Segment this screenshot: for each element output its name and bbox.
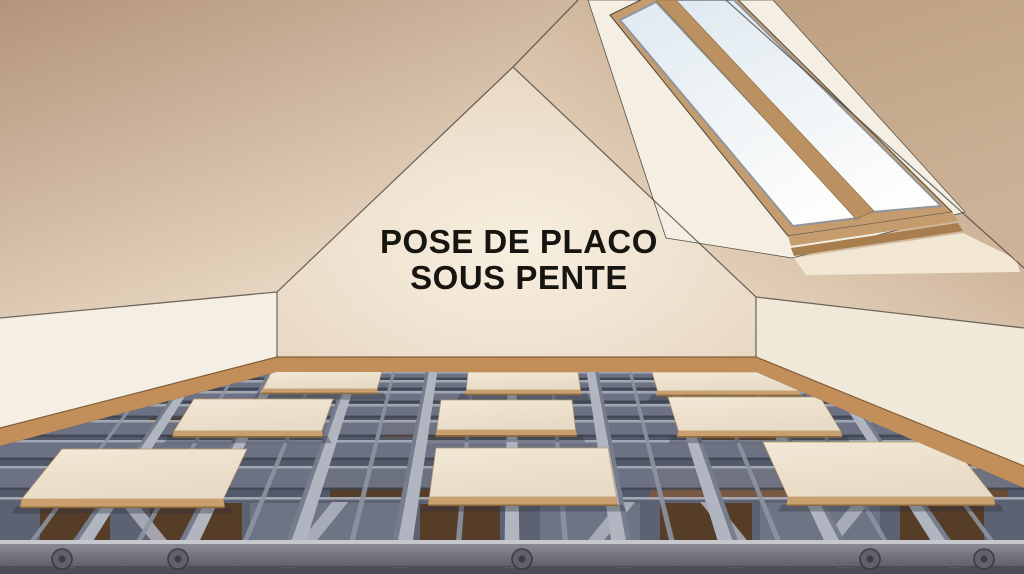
- drywall-panel-edge: [173, 431, 324, 436]
- drywall-panel-edge: [677, 431, 842, 436]
- drywall-panel-edge: [262, 389, 379, 393]
- drywall-panel: [668, 397, 841, 431]
- drywall-panel-edge: [428, 497, 618, 504]
- drywall-panel-edge: [787, 497, 996, 504]
- drywall-panel-edge: [20, 499, 225, 507]
- drywall-panel-edge-line: [428, 504, 618, 506]
- title-line-1: POSE DE PLACO: [380, 223, 658, 260]
- beam-bolt-center: [981, 556, 988, 563]
- drywall-panel-edge-line: [262, 393, 379, 395]
- beam-bolt-center: [867, 556, 874, 563]
- attic-illustration: POSE DE PLACO SOUS PENTE: [0, 0, 1024, 574]
- drywall-panel-edge: [435, 430, 577, 435]
- drywall-panel-edge-line: [465, 394, 582, 396]
- edge-beam: [0, 540, 1024, 574]
- drywall-panel: [174, 399, 333, 431]
- drywall-panel: [429, 448, 616, 497]
- beam-bolt-center: [175, 556, 182, 563]
- drywall-panel-edge-line: [20, 507, 225, 509]
- beam-top-lip: [0, 540, 1024, 544]
- drywall-panel: [437, 400, 576, 430]
- drywall-panel-edge: [656, 391, 800, 395]
- drywall-panel-edge-line: [677, 436, 842, 438]
- drywall-panel: [263, 371, 382, 389]
- beam-bolt-center: [519, 556, 526, 563]
- drywall-panel-edge-line: [173, 436, 324, 438]
- title-line-2: SOUS PENTE: [410, 259, 628, 296]
- baseboard-center: [277, 357, 756, 372]
- drywall-panel-edge-line: [787, 504, 996, 506]
- drywall-panel: [22, 449, 247, 499]
- scene-canvas: POSE DE PLACO SOUS PENTE: [0, 0, 1024, 574]
- drywall-panel-edge-line: [656, 395, 800, 397]
- drywall-panel: [466, 372, 580, 390]
- beam-bolt-center: [59, 556, 66, 563]
- drywall-panel-edge: [465, 390, 582, 394]
- drywall-panel-edge-line: [435, 435, 577, 437]
